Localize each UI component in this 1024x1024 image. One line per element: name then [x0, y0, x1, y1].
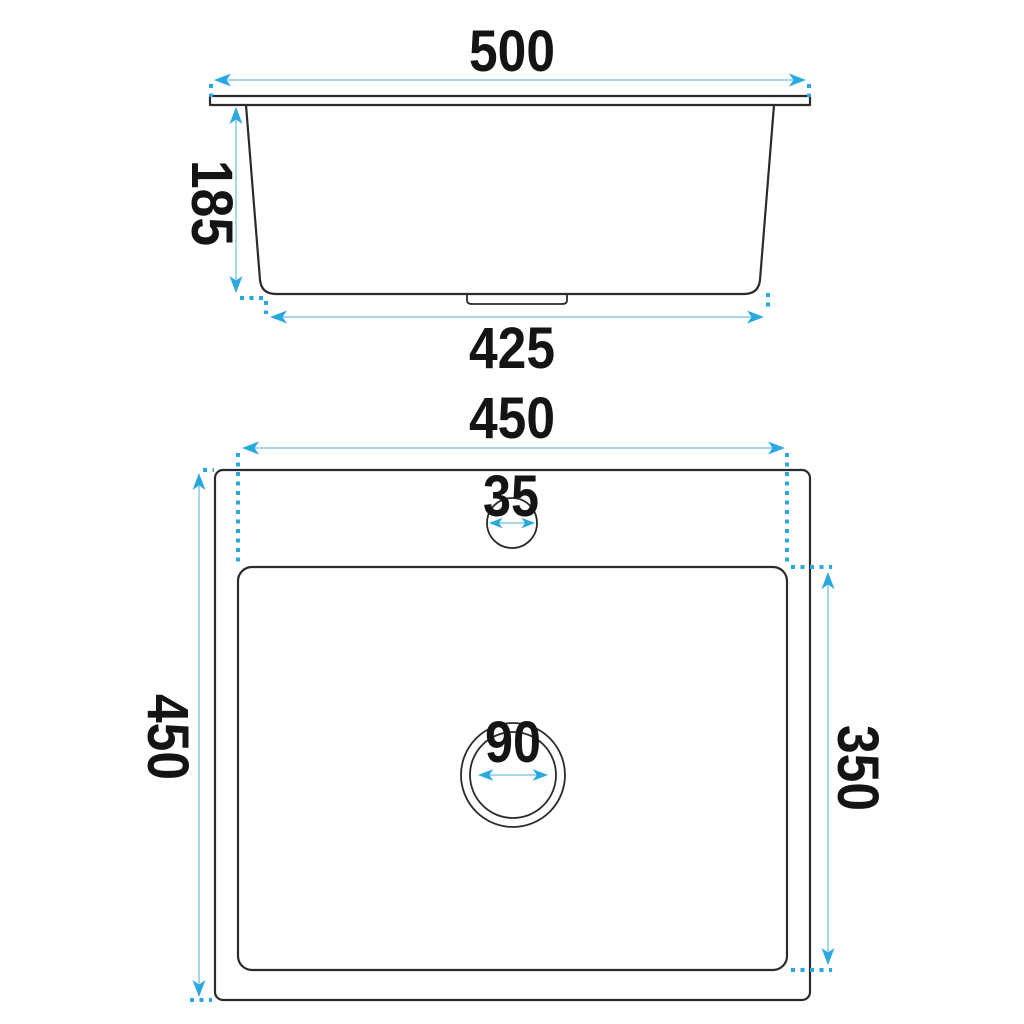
- dim-base-width: 425: [270, 293, 768, 381]
- dim-label-tap-hole: 35: [483, 464, 539, 529]
- sink-body-outline: [246, 105, 774, 294]
- top-plan-view: 450 450 350 35: [135, 386, 890, 1000]
- dim-tap-hole: 35: [483, 464, 539, 529]
- dim-label-base-width: 425: [469, 316, 555, 381]
- dim-label-depth: 185: [179, 160, 244, 246]
- sink-rim-outline: [210, 96, 810, 105]
- dim-depth: 185: [179, 107, 266, 314]
- dim-label-bowl-length: 350: [825, 725, 890, 811]
- dim-bowl-length: 350: [791, 567, 890, 970]
- drain-fitting-outline: [467, 295, 567, 304]
- side-elevation-view: 500 185 425: [179, 19, 810, 381]
- dim-label-drain-hole: 90: [485, 710, 541, 775]
- technical-drawing-canvas: 500 185 425: [0, 0, 1024, 1024]
- dim-label-overall-length: 450: [135, 694, 200, 780]
- sink-dimension-drawing: 500 185 425: [0, 0, 1024, 1024]
- dim-label-bowl-width: 450: [469, 386, 555, 451]
- dim-label-overall-width: 500: [469, 19, 555, 84]
- dim-overall-length: 450: [135, 470, 214, 1000]
- dim-overall-width: 500: [211, 19, 809, 97]
- dim-drain-hole: 90: [478, 710, 548, 781]
